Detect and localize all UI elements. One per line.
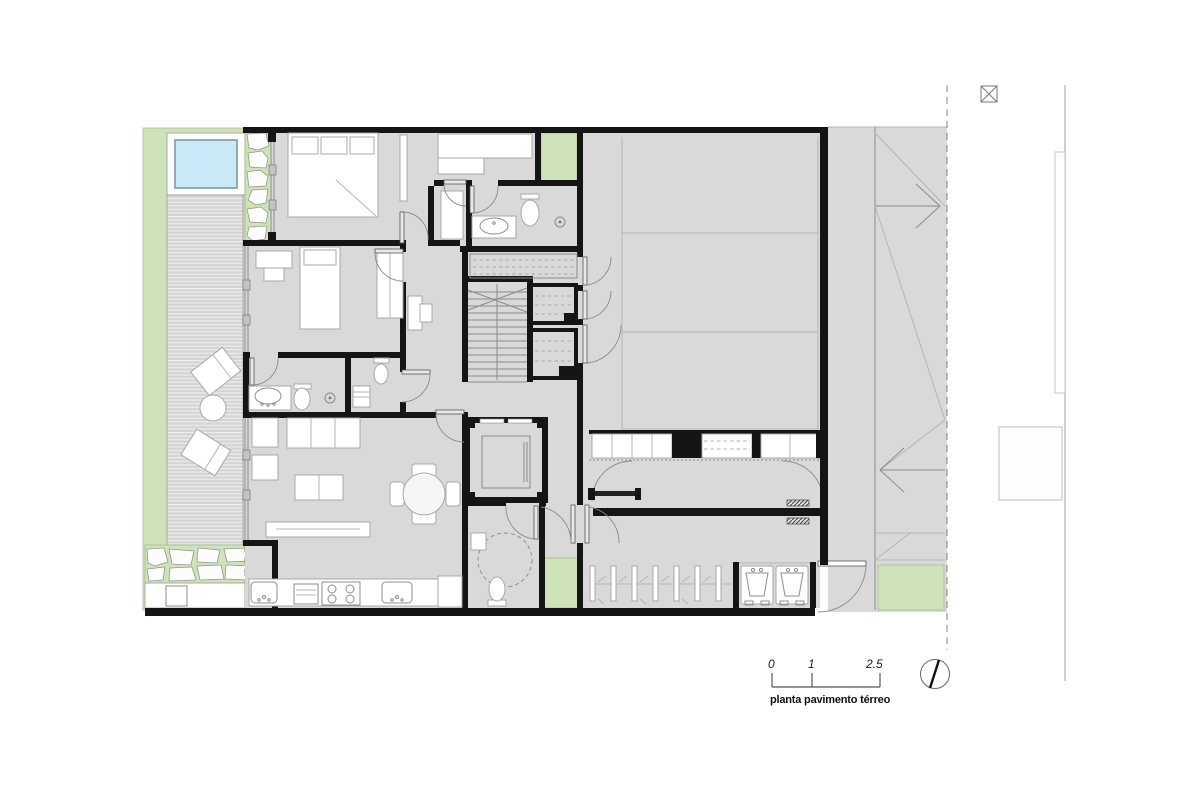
desk-chair — [264, 268, 284, 281]
single-bed — [300, 247, 340, 329]
neighbor-structure — [999, 427, 1062, 500]
desk — [256, 251, 292, 268]
side-path-floor — [828, 127, 947, 612]
armchair — [252, 418, 278, 447]
storage-closets-row — [589, 430, 825, 460]
toilet — [489, 577, 505, 601]
boundary-marker-icon — [981, 86, 997, 102]
scale-tick-2-5: 2.5 — [865, 657, 883, 671]
scale-tick-1: 1 — [808, 657, 815, 671]
sliding-door-leaf — [787, 518, 809, 524]
laundry-sink — [741, 566, 773, 605]
toilet — [374, 364, 388, 384]
north-indicator-icon — [921, 660, 950, 689]
stepping-stones-top — [245, 131, 271, 243]
neighbor-wall — [1055, 152, 1065, 393]
toilet — [294, 388, 310, 410]
sliding-door-leaf — [787, 500, 809, 506]
sofa — [287, 418, 360, 448]
double-bed — [288, 133, 378, 217]
pool — [175, 140, 237, 188]
kitchen — [249, 576, 462, 607]
garden-patch-top — [541, 133, 577, 182]
garden-patch-bottom-right — [878, 565, 944, 610]
outdoor-service-area — [145, 583, 245, 608]
corner-sink — [471, 533, 486, 550]
toilet-tank — [374, 358, 389, 363]
garden-patch-bottom-left — [540, 558, 580, 608]
deck-side-table — [200, 395, 226, 421]
floor-plan-page: 0 1 2.5 planta pavimento térreo — [0, 0, 1200, 800]
kitchen-counter — [249, 579, 462, 606]
tv-bench — [266, 522, 370, 537]
floor-plan-drawing: 0 1 2.5 planta pavimento térreo — [0, 0, 1200, 800]
boundaries — [947, 85, 1065, 681]
hall-chair — [420, 304, 432, 322]
plan-caption: planta pavimento térreo — [770, 694, 891, 706]
scale-bar: 0 1 2.5 planta pavimento térreo — [768, 657, 891, 706]
laundry-sink — [776, 566, 808, 605]
wardrobe — [400, 135, 407, 201]
scale-tick-0: 0 — [768, 657, 775, 671]
fridge — [438, 576, 462, 607]
dining-table — [403, 473, 445, 515]
armchair — [252, 455, 278, 480]
